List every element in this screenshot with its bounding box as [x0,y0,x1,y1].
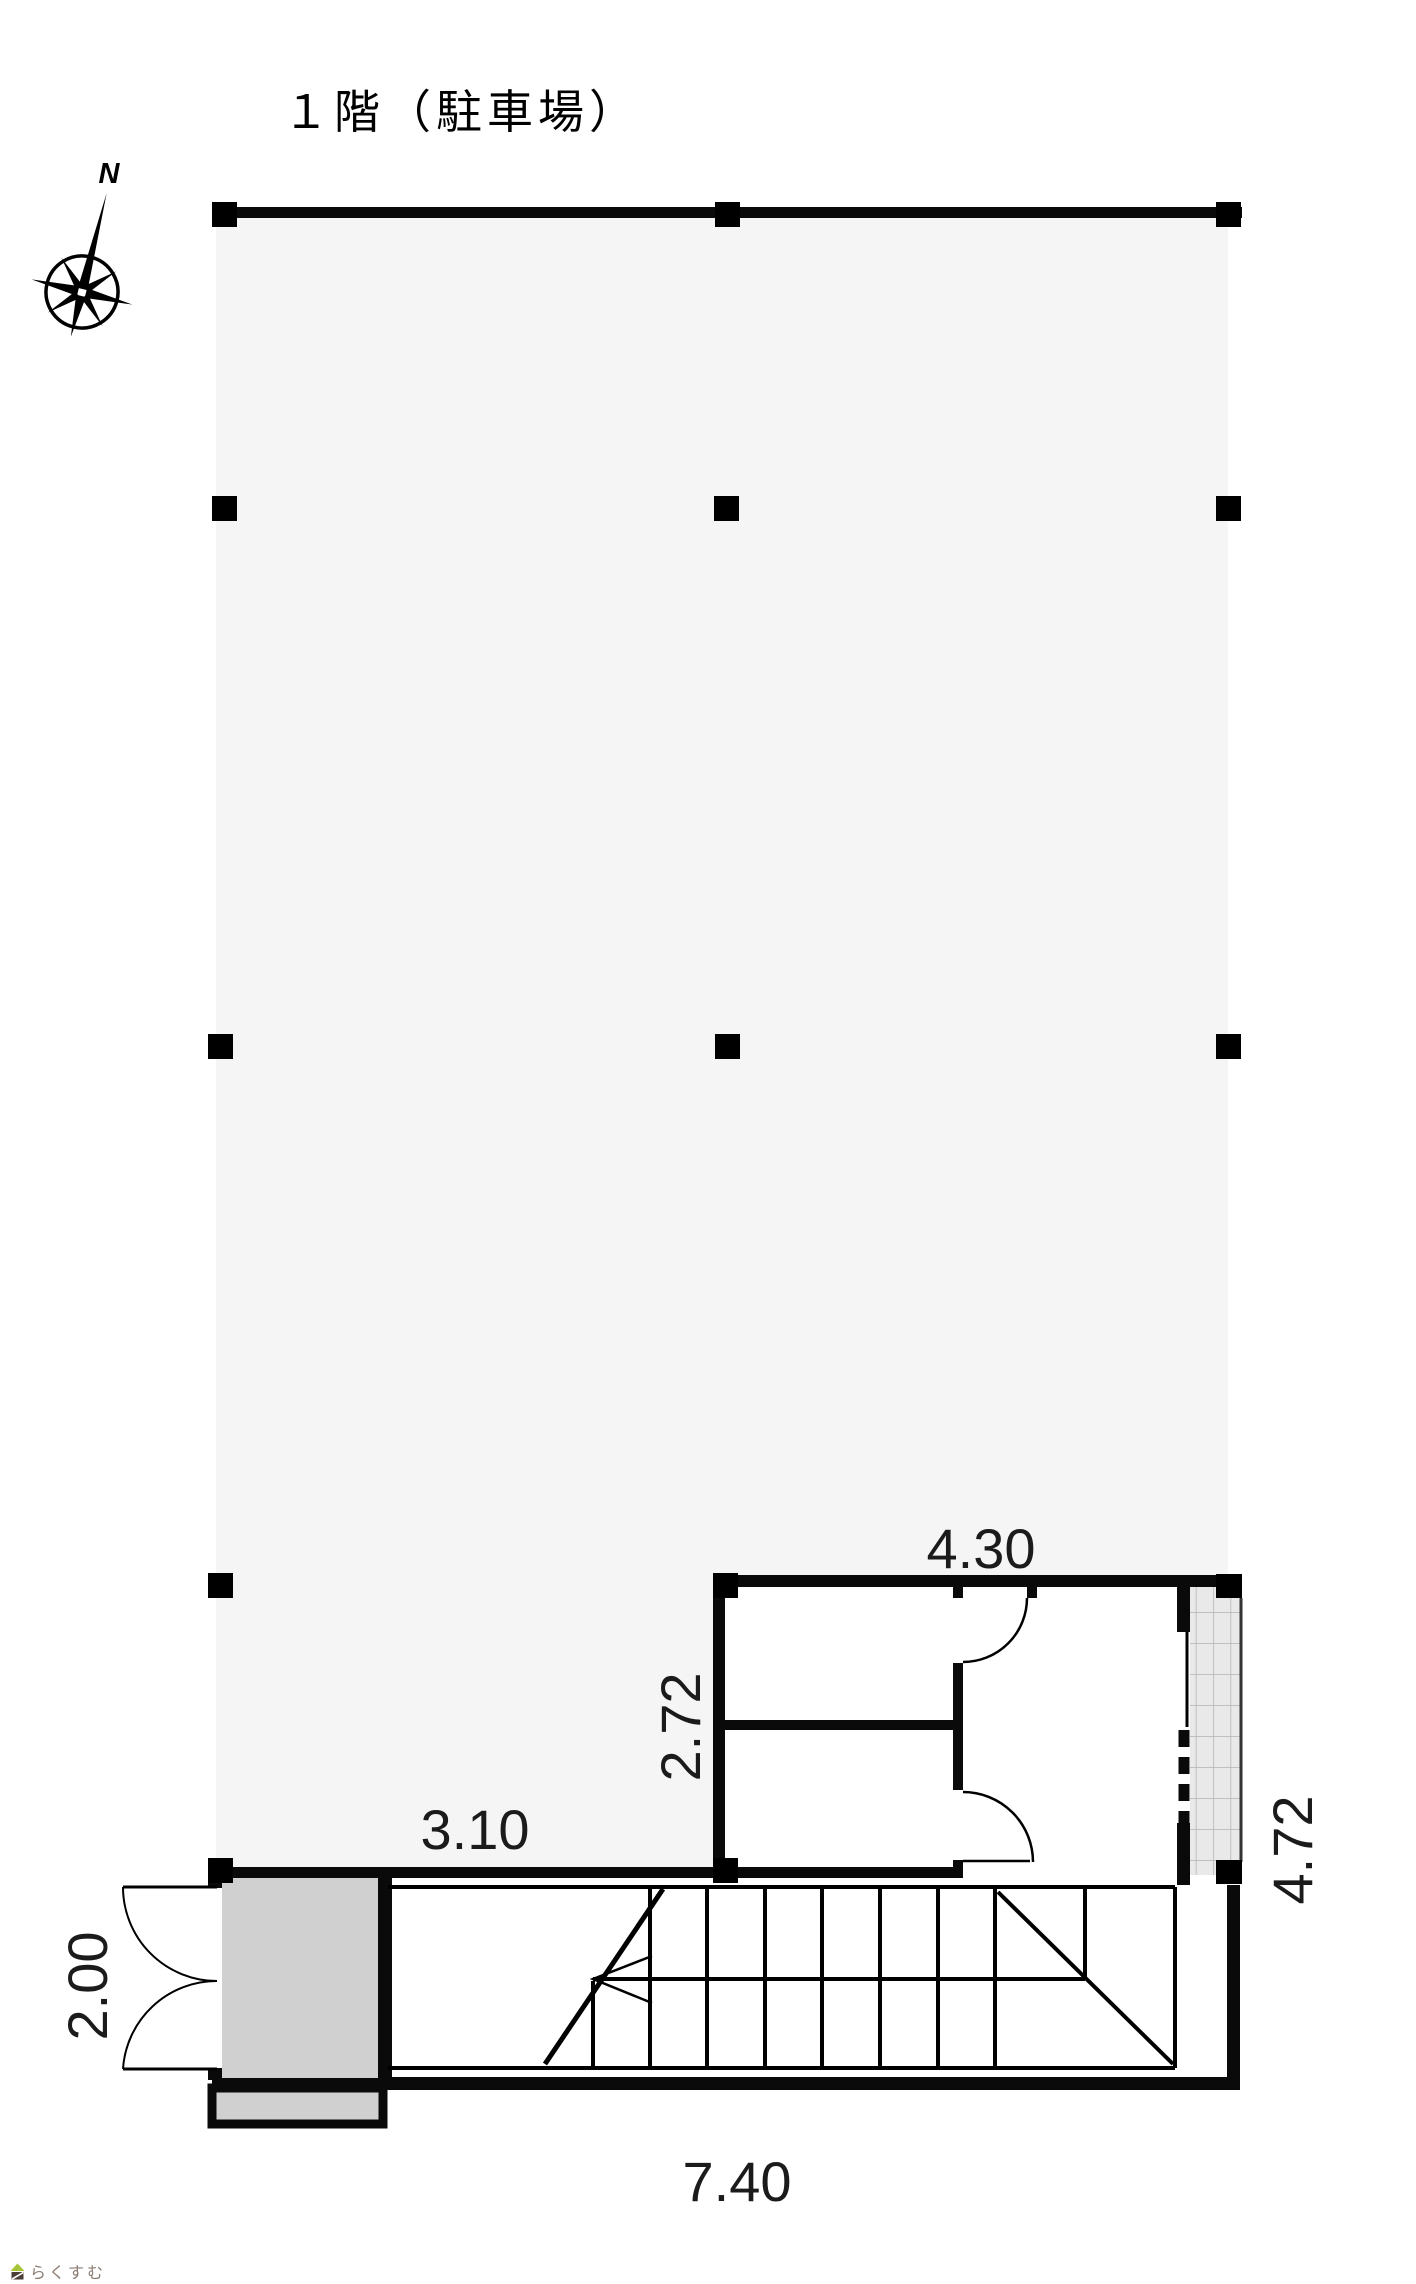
dim-room-depth: 2.72 [653,1652,709,1802]
dim-room-width: 4.30 [906,1521,1056,1577]
north-needle [78,192,112,290]
dim-right-total-depth: 4.72 [1265,1775,1321,1925]
staircase [388,1887,1175,2068]
entrance-double-door [123,1887,217,2069]
compass-north-label: N [92,158,126,191]
dim-left-span: 3.10 [400,1802,550,1858]
entrance-porch-step [212,2088,383,2124]
floor-plan-page: １階（駐車場） N 4.30 3.10 7.40 2.72 4.72 2.00 … [0,0,1416,2284]
stair-break-line [545,1889,663,2064]
dim-stair-total-width: 7.40 [662,2154,812,2210]
house-icon [10,2263,25,2280]
page-title: １階（駐車場） [283,76,640,142]
site-logo: らくすむ [10,2259,106,2283]
entrance-vestibule [222,1878,378,2080]
shutter-strip [1190,1585,1242,1875]
floor-plan-drawing [0,0,1416,2284]
site-logo-text: らくすむ [30,2259,106,2283]
dim-entrance-depth: 2.00 [60,1911,116,2061]
compass-rose [13,179,161,360]
